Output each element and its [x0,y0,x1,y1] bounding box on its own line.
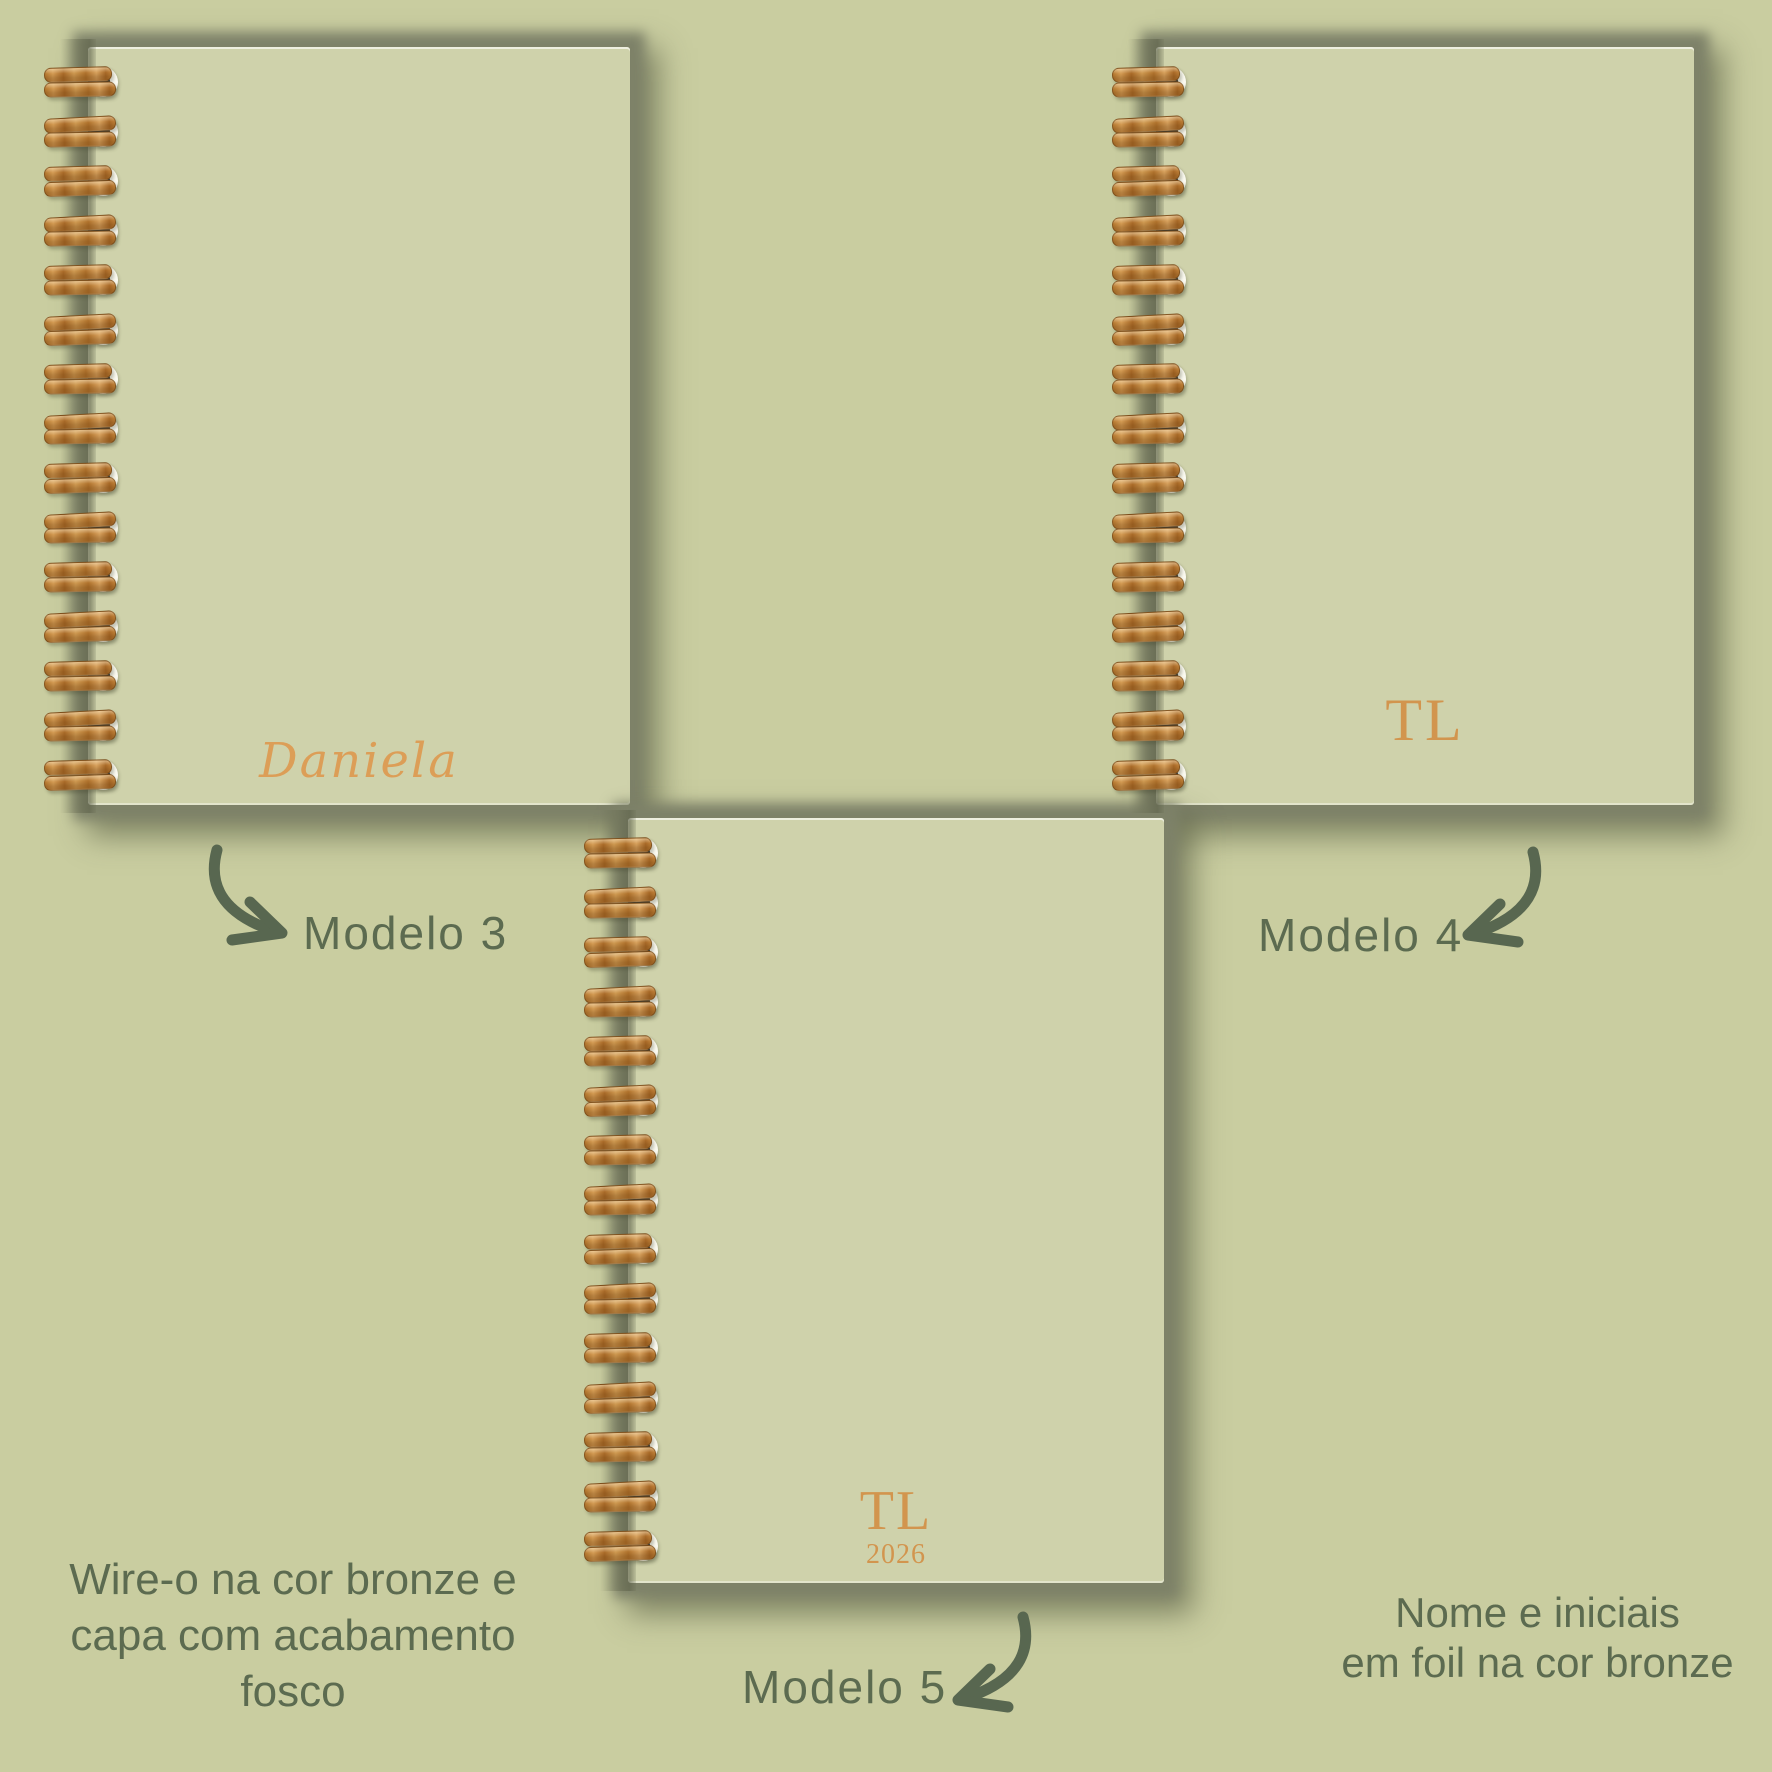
wire-ring [584,1233,670,1267]
wire-loop [1112,527,1184,543]
wire-ring [44,363,130,397]
wire-loop [584,1001,656,1017]
wire-ring [44,314,130,348]
wire-ring [44,165,130,199]
wire-ring [584,837,670,871]
wire-ring [44,462,130,496]
cover-foil-name: Daniela [88,733,630,789]
wire-loop [44,66,112,83]
wire-ring [1112,66,1198,100]
wire-ring [584,1085,670,1119]
wire-ring [584,1134,670,1168]
notebook-modelo-5: TL 2026 [628,818,1164,1583]
wire-loop [1112,660,1180,677]
wire-ring [1112,363,1198,397]
wire-loop [584,1347,656,1363]
wire-loop [584,1149,656,1165]
caption-foil-bronze: Nome e iniciais em foil na cor bronze [1315,1588,1760,1688]
wire-loop [1112,625,1184,643]
wire-ring [584,1431,670,1465]
wire-loop [584,1396,656,1414]
wire-ring [44,561,130,595]
caption-wireo-finish: Wire-o na cor bronze e capa com acabamen… [38,1552,548,1720]
wire-ring [584,1382,670,1416]
wire-loop [44,264,112,281]
caption-line: capa com acabamento [38,1608,548,1664]
wire-loop [1112,264,1180,281]
wire-ring [44,611,130,645]
wire-ring [44,116,130,150]
wire-ring [1112,116,1198,150]
wire-ring [44,264,130,298]
wire-ring [44,66,130,100]
wire-loop [44,576,116,592]
wire-ring [44,413,130,447]
curved-arrow-icon [1456,845,1548,950]
wire-loop [44,230,116,246]
label-modelo-3: Modelo 3 [303,906,508,960]
wire-loop [1112,576,1184,592]
caption-line: em foil na cor bronze [1315,1638,1760,1688]
wire-ring [1112,215,1198,249]
wire-loop [1112,180,1184,198]
wire-ring [584,986,670,1020]
caption-line: Nome e iniciais [1315,1588,1760,1638]
wire-loop [1112,363,1180,380]
wire-ring [1112,561,1198,595]
wire-loop [1112,230,1184,246]
wire-ring [44,215,130,249]
wire-loop [584,1099,656,1117]
wire-loop [44,378,116,394]
curved-arrow-icon [946,1610,1038,1715]
wire-loop [584,1248,656,1266]
caption-line: Wire-o na cor bronze e [38,1552,548,1608]
wire-loop [44,131,116,147]
label-modelo-5: Modelo 5 [742,1660,947,1714]
wire-loop [584,852,656,868]
wire-loop [44,81,116,97]
wire-ring [1112,759,1198,793]
wire-loop [584,1298,656,1314]
label-modelo-4: Modelo 4 [1258,908,1463,962]
wire-loop [584,1446,656,1462]
wire-loop [44,660,112,677]
wire-loop [584,1199,656,1215]
wire-loop [584,1035,652,1052]
wire-loop [1112,328,1184,346]
wire-loop [584,1050,656,1066]
wire-ring [1112,462,1198,496]
wire-ring [584,1035,670,1069]
wire-loop [44,561,112,578]
wire-ring [1112,413,1198,447]
cover-foil-initials: TL [628,1483,1164,1539]
cover-foil-initials: TL [1156,686,1694,755]
wire-ring [584,1283,670,1317]
wire-loop [1112,428,1184,444]
notebook-modelo-4: TL [1156,47,1694,805]
wire-loop [1112,131,1184,147]
wire-loop [584,951,656,969]
wire-loop [584,902,656,918]
wire-loop [584,1332,652,1349]
caption-line: fosco [38,1664,548,1720]
notebook-modelo-3: Daniela [88,47,630,805]
wire-loop [44,625,116,643]
wire-ring [1112,264,1198,298]
wire-loop [44,180,116,198]
wire-loop [44,279,116,295]
wire-ring [584,887,670,921]
wire-ring [1112,314,1198,348]
wire-loop [1112,774,1184,792]
wire-ring [584,1184,670,1218]
wire-loop [44,477,116,495]
wire-ring [44,512,130,546]
wire-loop [44,675,116,691]
wire-loop [584,1134,652,1151]
wire-loop [44,363,112,380]
wire-loop [1112,81,1184,97]
wire-loop [1112,279,1184,295]
wire-loop [584,1431,652,1448]
curved-arrow-icon [202,843,294,948]
wire-loop [1112,561,1180,578]
wire-loop [44,428,116,444]
wire-loop [44,527,116,543]
wire-ring [1112,611,1198,645]
wire-loop [1112,477,1184,495]
cover-foil-initials-year: TL 2026 [628,1483,1164,1569]
wire-loop [1112,66,1180,83]
wire-ring [584,1332,670,1366]
wire-o-binding [88,47,630,805]
wire-loop [44,328,116,346]
wire-ring [1112,512,1198,546]
wire-o-binding [628,818,1164,1583]
wire-loop [1112,378,1184,394]
wire-loop [584,837,652,854]
product-showcase: Daniela TL TL 2026 Modelo 3 Modelo 4 Mod… [0,0,1772,1772]
wire-ring [584,936,670,970]
wire-ring [44,660,130,694]
cover-foil-year: 2026 [628,1541,1164,1569]
wire-ring [1112,165,1198,199]
